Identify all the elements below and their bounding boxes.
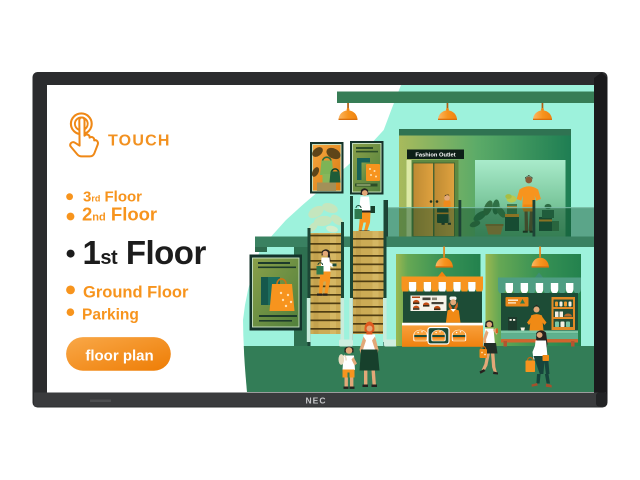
svg-text:TOUCH: TOUCH bbox=[108, 132, 171, 149]
svg-text:Ground Floor: Ground Floor bbox=[83, 284, 189, 302]
svg-text:NEC: NEC bbox=[306, 396, 327, 406]
svg-text:Fashion Outlet: Fashion Outlet bbox=[415, 153, 455, 159]
svg-text:Parking: Parking bbox=[82, 306, 139, 323]
svg-text:floor plan: floor plan bbox=[85, 348, 153, 365]
